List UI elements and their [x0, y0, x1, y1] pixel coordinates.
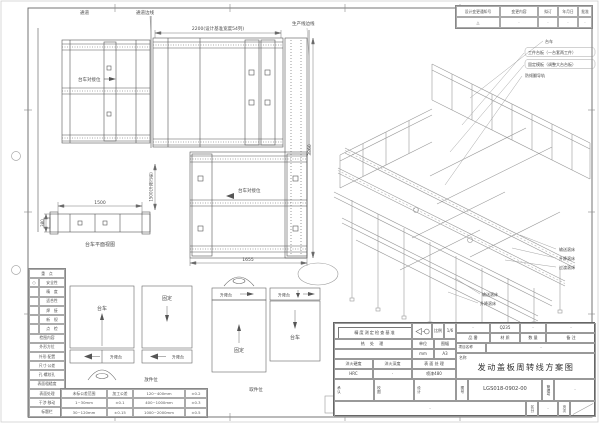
- side-dim-380: 380: [40, 219, 45, 227]
- tolerance-cell: ±0.15: [107, 408, 133, 417]
- revision-header: 拟订: [538, 6, 558, 17]
- diagram3-lift-label: 升降台: [220, 292, 232, 298]
- legend-row: 新 规: [39, 315, 65, 324]
- tolerance-cell: 1000~2000mm: [133, 408, 185, 417]
- scale-value: 1/6: [444, 323, 456, 339]
- iso-label-trolley: 台车: [545, 38, 553, 44]
- side-view-caption: 台车平面视图: [85, 241, 115, 248]
- plan-view-return: [190, 152, 307, 258]
- tolerance-cell: 加工公差: [107, 389, 133, 398]
- iso-label-lifter-1: 升降滚床: [559, 255, 575, 261]
- diagonal-divider: [571, 401, 595, 417]
- tolerance-cell: 未标公差范围: [61, 389, 107, 398]
- dim-2200: 2200(设计基准宽度54列): [192, 25, 244, 32]
- page-label: 页次: [562, 405, 566, 412]
- drawing-number: LGS018-0902-00: [468, 379, 542, 401]
- tolerance-cell: 400~1000mm: [133, 398, 185, 407]
- drawing-name-cell: 名称 发动盖板周转线方案图: [456, 353, 596, 379]
- diagram3-box-label: 固定: [234, 347, 244, 354]
- diagram2-lift-label: 升降台: [172, 354, 184, 360]
- isometric-view: [298, 64, 590, 333]
- legend-row: 适合性: [39, 297, 65, 306]
- legend-row: 精 度: [39, 287, 65, 296]
- punch-hole: [12, 266, 21, 275]
- material-value: Q235: [490, 323, 520, 333]
- remarks-label: 备 注: [546, 333, 596, 343]
- drawing-no-label: 图号: [460, 386, 464, 393]
- iso-label-lifter-2: 升降滚床: [480, 300, 496, 306]
- depth-label: 淬火深度: [373, 359, 412, 369]
- class-label: 区分: [530, 405, 534, 412]
- revision-header: 设计变更通知号: [456, 6, 500, 17]
- iso-label-fixture: 固定模板（调整大台台板）: [528, 61, 576, 67]
- legend-row: 孔·螺纹孔: [29, 370, 65, 379]
- scale-label: 比例: [432, 323, 444, 339]
- accuracy-check-header: 精度测定检查基准: [338, 327, 412, 340]
- legend-row: 点 检: [39, 324, 65, 333]
- diagram4-lift-label: 升降台: [278, 292, 290, 298]
- surface-treatment-label: 表 面 处 理: [412, 359, 456, 369]
- iso-label-pallet: 工件台板（一台套两工件）: [528, 49, 576, 55]
- tolerance-cell: ±0.1: [107, 398, 133, 407]
- heat-treatment-label: 热 处 理: [334, 339, 412, 349]
- tolerance-cell: ±0.2: [185, 389, 207, 398]
- sheet-size-value: A3: [434, 349, 456, 359]
- tolerance-cell: ±0.5: [185, 408, 207, 417]
- dock-arrows: [104, 77, 234, 199]
- bottom-note: ·: [334, 401, 526, 417]
- material-label: 材 质: [490, 333, 520, 343]
- dock-label-b: 台车对接位: [238, 187, 261, 194]
- revision-header: 变更内容: [500, 6, 538, 17]
- tolerance-cell: 120~400mm: [133, 389, 185, 398]
- trolley-side-view: [44, 212, 150, 234]
- iso-label-conveyor-1: 输送滚床: [559, 246, 575, 252]
- revision-table: 设计变更通知号 变更内容 拟订 年月日 批准 △ · · · ·: [455, 5, 593, 29]
- hardness-label: 淬火硬度: [334, 359, 373, 369]
- iso-label-conveyor-2: 输送滚床: [482, 291, 498, 297]
- iso-label-guide-rail: 防倾翻导轨: [525, 72, 545, 78]
- iso-leaders: [150, 16, 595, 303]
- page-diagonal-cell: [570, 401, 596, 417]
- legend-symbol: ○: [29, 278, 39, 287]
- diagram1-box-label: 台车: [97, 305, 107, 312]
- qty-value: ·: [520, 323, 546, 333]
- iso-label-transfer: 过渡滚床: [559, 264, 575, 270]
- tolerance-cell: 30~120mm: [61, 408, 107, 417]
- caption-load-position: 放件位: [144, 376, 158, 383]
- dimensions: [44, 30, 315, 266]
- tolerance-cell: ±0.3: [185, 398, 207, 407]
- legend-row: 安全性: [39, 278, 65, 287]
- drawing-title: 发动盖板周转线方案图: [457, 361, 595, 373]
- surface-treatment-value: 喷漆480: [412, 369, 456, 379]
- turntable-ellipse: [298, 263, 338, 285]
- remarks-value: ·: [546, 323, 596, 333]
- legend-row: 外形方位: [29, 343, 65, 352]
- sheet-size-label: 图幅: [434, 339, 456, 349]
- project-name-value: ·: [486, 343, 596, 353]
- revision-cell: △: [456, 17, 500, 28]
- side-dim-1500: 1500: [94, 200, 106, 206]
- legend-title: 重 点: [29, 269, 65, 278]
- legend-row: 外形·配置: [29, 352, 65, 361]
- aisle-edge-label: 通道边线: [136, 9, 154, 16]
- unit-label: 单位: [412, 339, 434, 349]
- dim-3860: 3860: [307, 144, 313, 156]
- caption-unload-position: 取件位: [249, 386, 263, 393]
- approve-label: 承认: [337, 386, 341, 393]
- diagram1-lift-label: 升降台: [110, 354, 122, 360]
- diagram4-box-label: 台车: [290, 334, 300, 341]
- dim-1655: 1655: [242, 257, 254, 263]
- punch-hole: [12, 152, 21, 161]
- legend-row: 焊 接: [39, 306, 65, 315]
- dock-label-a: 台车对接位: [78, 76, 101, 83]
- class-value: ·: [538, 401, 558, 417]
- legend-section-title: 检图内容: [29, 334, 65, 343]
- management-no-label: 管理号: [546, 385, 550, 396]
- aisle-label: 通道: [80, 9, 89, 16]
- dim-lift-stroke: 1500(升降行程): [148, 172, 154, 202]
- first-angle-projection-icon: [414, 326, 431, 337]
- title-block: 精度测定检查基准 比例 1/6 热 处 理 单位 图幅 mm A3 淬火硬度 淬…: [333, 322, 595, 416]
- part-no-value: ·: [456, 323, 490, 333]
- revision-cell: ·: [538, 17, 558, 28]
- depth-value: ·: [373, 369, 412, 379]
- design-label: 设计: [417, 386, 421, 393]
- projection-symbol-cell: [412, 323, 432, 339]
- revision-cell: ·: [558, 17, 578, 28]
- project-name-label: 项目名称: [456, 343, 486, 353]
- part-no-label: 品 番: [456, 333, 490, 343]
- plan-view-right-column: [285, 38, 307, 258]
- tolerance-cell: 1~30mm: [61, 398, 107, 407]
- unit-value: mm: [412, 349, 434, 359]
- revision-header: 批准: [578, 6, 592, 17]
- hardness-value: HRC: [334, 369, 373, 379]
- tolerance-table: 未标公差范围 加工公差 120~400mm ±0.2 1~30mm ±0.1 4…: [60, 388, 208, 418]
- revision-cell: ·: [500, 17, 538, 28]
- revision-cell: ·: [578, 17, 592, 28]
- qty-label: 数 量: [520, 333, 546, 343]
- revision-header: 年月日: [558, 6, 578, 17]
- management-no-value: ·: [554, 379, 596, 401]
- prod-edge-label: 生产线边线: [292, 20, 315, 27]
- diagram2-box-label: 固定: [162, 295, 172, 302]
- legend-row: 尺寸·公差: [29, 361, 65, 370]
- check-label: 校图: [377, 386, 381, 393]
- drawing-sheet: 通道 通道边线 生产线边线 2200(设计基准宽度54列) 台车对接位 台车对接…: [0, 0, 600, 424]
